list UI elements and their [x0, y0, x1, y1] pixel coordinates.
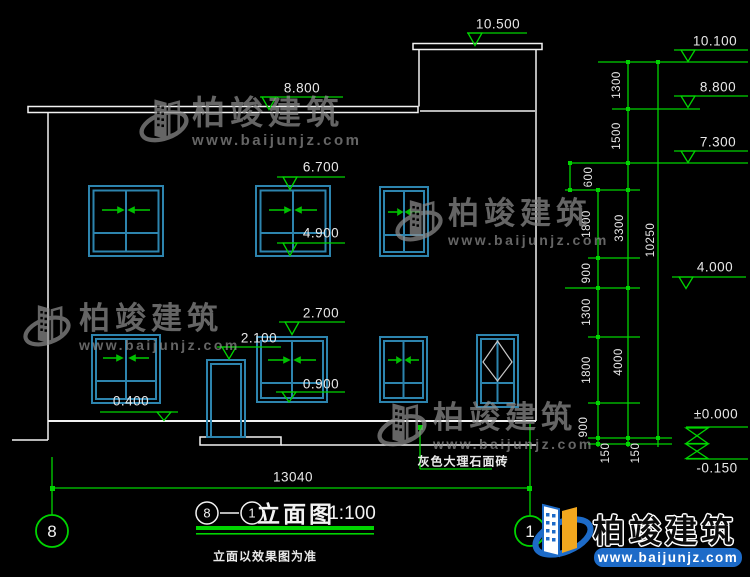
watermark-brand: 柏竣建筑 — [79, 303, 240, 334]
elevation-drawing-canvas: 10.500 8.800 6.700 4.900 2.700 2.100 0.9… — [0, 0, 750, 577]
dim-label: 1800 — [581, 356, 593, 384]
baijun-logo-icon — [530, 505, 595, 562]
elevation-label: 2.700 — [303, 306, 339, 321]
stair-tower-cap — [413, 44, 542, 50]
material-note: 灰色大理石面砖 — [417, 453, 508, 470]
drawing-scale: 1:100 — [328, 503, 376, 525]
dim-label: 1300 — [581, 298, 593, 326]
level-label: ±0.000 — [694, 407, 738, 422]
window — [256, 186, 330, 256]
dim-label: 4000 — [613, 348, 625, 376]
elevation-label: 2.100 — [241, 331, 277, 346]
watermark-brand: 柏竣建筑 — [192, 96, 361, 129]
dim-label: 900 — [581, 263, 593, 284]
elevation-label: 0.900 — [303, 377, 339, 392]
dim-label: 10250 — [645, 223, 657, 257]
watermark-site: www.baijunjz.com — [79, 338, 240, 352]
entry-door — [207, 360, 245, 437]
dim-label: 600 — [583, 167, 595, 188]
drawing-subtitle: 立面以效果图为准 — [213, 548, 317, 565]
watermark: 柏竣建筑 www.baijunjz.com — [433, 402, 594, 451]
dim-label: 1300 — [611, 71, 623, 99]
elevation-label: 6.700 — [303, 160, 339, 175]
watermark-site: www.baijunjz.com — [433, 437, 594, 451]
watermark-logo-icon — [22, 305, 72, 349]
logo-site-bar: www.baijunjz.com — [594, 548, 742, 567]
diamond-window — [477, 335, 518, 407]
elevation-label: 10.500 — [476, 17, 520, 32]
watermark-site: www.baijunjz.com — [192, 133, 361, 148]
watermark: 柏竣建筑 www.baijunjz.com — [192, 96, 361, 148]
dim-label: 150 — [630, 443, 642, 464]
logo-site: www.baijunjz.com — [598, 550, 739, 565]
elevation-label: 0.400 — [113, 394, 149, 409]
cad-linework — [0, 0, 750, 577]
door-step — [200, 437, 281, 445]
window — [89, 186, 163, 256]
window — [380, 337, 427, 402]
watermark-logo-icon — [394, 200, 444, 244]
drawing-title: 立面图 — [257, 495, 335, 529]
watermark-brand: 柏竣建筑 — [433, 402, 594, 433]
watermark: 柏竣建筑 www.baijunjz.com — [79, 303, 240, 352]
level-label: 8.800 — [700, 80, 736, 95]
level-label: 10.100 — [693, 34, 737, 49]
dim-label: 1500 — [611, 122, 623, 150]
level-label: 7.300 — [700, 135, 736, 150]
width-dim-label: 13040 — [273, 470, 313, 485]
title-axis-a: 8 — [203, 506, 210, 521]
dim-label: 3300 — [614, 214, 626, 242]
watermark-site: www.baijunjz.com — [448, 233, 609, 247]
axis-bubble-1: 1 — [525, 522, 534, 542]
dim-label: 150 — [600, 443, 612, 464]
axis-bubble-8: 8 — [47, 522, 56, 542]
level-label: 4.000 — [697, 260, 733, 275]
logo-brand: 柏竣建筑 — [593, 506, 737, 552]
elevation-label: 4.900 — [303, 226, 339, 241]
watermark: 柏竣建筑 www.baijunjz.com — [448, 198, 609, 247]
level-label: -0.150 — [696, 461, 737, 476]
dimension-linework — [36, 33, 748, 547]
watermark-brand: 柏竣建筑 — [448, 198, 609, 229]
title-axis-b: 1 — [248, 506, 255, 521]
